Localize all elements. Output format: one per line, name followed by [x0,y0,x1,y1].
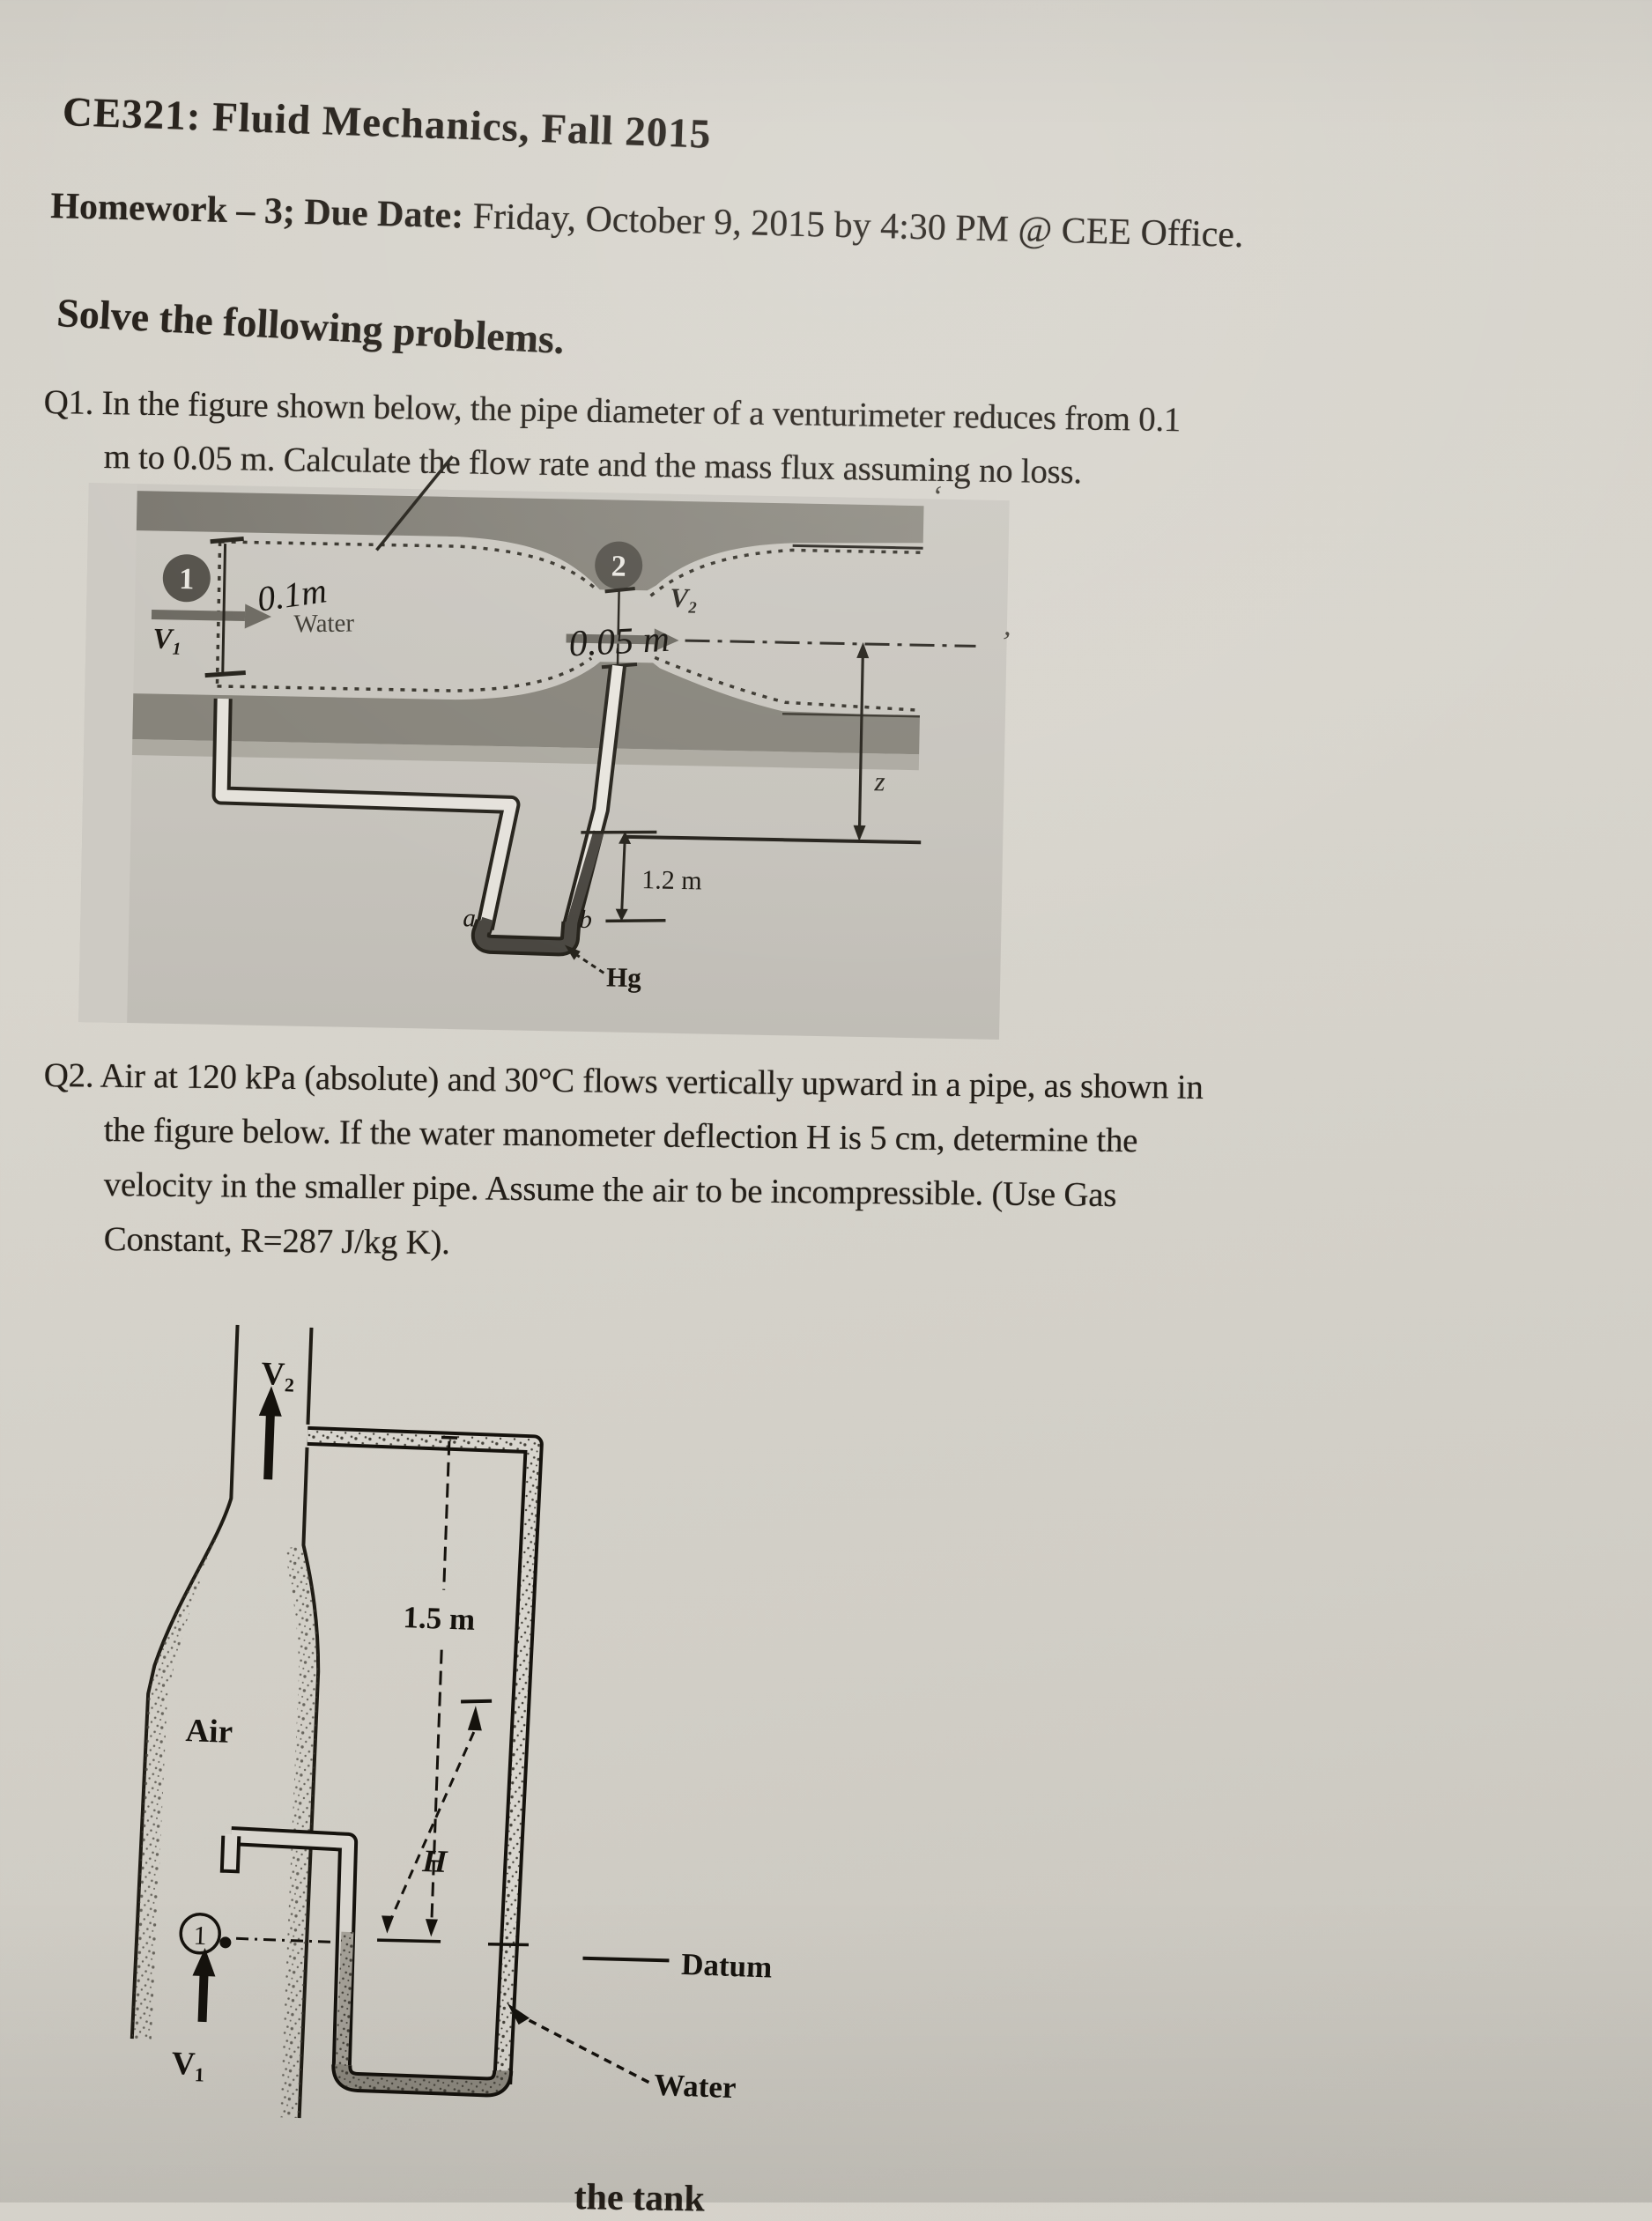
paper-sheet: CE321: Fluid Mechanics, Fall 2015 Homewo… [0,0,1652,2202]
water-label: Water [654,2068,737,2105]
q1-text-line1: Q1. In the figure shown below, the pipe … [43,382,1181,440]
left-wall-stipple [132,1495,232,2041]
q2-text-line1: Q2. Air at 120 kPa (absolute) and 30°C f… [44,1055,1204,1107]
v2-label: V₂ [261,1356,295,1393]
deflection-h-label: H [421,1843,448,1879]
flow-arrow-v2-shaft [268,1409,270,1479]
h-dimension-line [389,1729,474,1926]
flow-arrow-v1-shaft [152,614,245,616]
air-pipe-diagram: V₂ 1.5 m H Air [72,1313,808,2202]
air-label: Air [185,1713,233,1751]
datum-line [582,1958,669,1962]
manometer-tubing [222,1433,534,2087]
figure-air-pipe-manometer: V₂ 1.5 m H Air [72,1313,808,2202]
course-title: CE321: Fluid Mechanics, Fall 2015 [62,88,712,159]
h-arrow-down [381,1915,394,1933]
dim15-top-tick [441,1437,457,1438]
datum-label: Datum [681,1947,773,1985]
homework-due-line: Homework – 3; Due Date: Friday, October … [50,185,1244,256]
clipped-bottom-text: the tank [574,2176,705,2221]
mercury-dim-bottom-tick [605,919,665,922]
datum-tick [488,1943,529,1946]
photographed-homework-page: { "document": { "title": "CE321: Fluid M… [0,0,1652,2202]
h-arrow-up [468,1706,483,1731]
dim15-line-lower [432,1650,441,1925]
dim15-line-upper [444,1441,449,1590]
dim15-arrow-down [425,1919,438,1936]
q2-text-line4: Constant, R=287 J/kg K). [104,1219,450,1262]
mercury-height-label: 1.2 m [641,865,702,895]
water-label: Water [293,609,354,638]
venturimeter-diagram: 1 V₁ 0.1m Water 2 V₂ 0.05 m z [78,483,1010,1040]
station-2-number: 2 [611,550,626,582]
v1-label: V₁ [171,2046,205,2083]
instruction-line: Solve the following problems. [56,289,566,363]
homework-label: Homework – 3; Due Date: [50,186,464,236]
station-1-level-line [236,1938,338,1942]
flow-arrow-v1-shaft [203,1969,204,2022]
q2-text-line3: velocity in the smaller pipe. Assume the… [104,1165,1117,1215]
h-top-tick [461,1699,492,1702]
z-label: z [873,766,885,796]
water-leader-line [518,2016,650,2082]
left-limb-mercury [484,919,487,931]
mercury-name-label: Hg [606,961,642,993]
station-1-number: 1 [179,563,195,596]
q2-text-line2: the figure below. If the water manometer… [104,1110,1138,1160]
level-a-label: a [463,904,476,932]
diameter2-handwritten: 0.05 m [568,619,671,665]
mercury-dim-top-tick [581,831,656,834]
homework-due-value: Friday, October 9, 2015 by 4:30 PM @ CEE… [463,196,1244,255]
height-1-5m-label: 1.5 m [403,1600,476,1637]
figure-venturimeter: 1 V₁ 0.1m Water 2 V₂ 0.05 m z [78,483,1010,1040]
station-1-dot [219,1936,231,1948]
v2-label: V₂ [670,582,698,614]
figure1-left-margin [78,483,137,1023]
station-1-number: 1 [193,1921,207,1951]
water-level-tick [377,1939,441,1943]
v1-label: V₁ [152,623,182,655]
level-b-label: b [579,906,592,934]
